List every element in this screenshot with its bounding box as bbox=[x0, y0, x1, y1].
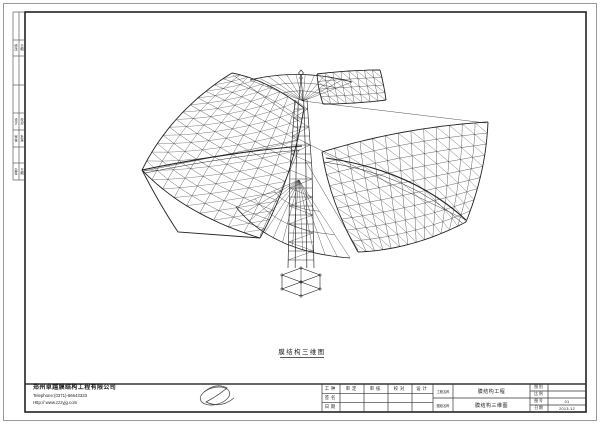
project-name-value: 膜结构工程 bbox=[453, 384, 530, 398]
titleblock-row-label: 工种 bbox=[322, 384, 340, 393]
company-phone: Telephone:(0371)-66643333 bbox=[33, 394, 87, 398]
company-website: Http:// www.zzzyjg.com bbox=[33, 401, 77, 405]
sheet-type-label: 图别 bbox=[530, 384, 548, 391]
margin-cell: 日期 bbox=[19, 41, 25, 55]
scale-label: 比例 bbox=[530, 391, 548, 398]
titleblock-row-label: 日期 bbox=[322, 403, 340, 412]
date-value: 2013-12 bbox=[548, 405, 586, 412]
margin-cell: 批准 bbox=[19, 131, 25, 146]
structure-wireframe bbox=[142, 70, 488, 297]
titleblock-row-label: 签名 bbox=[322, 393, 340, 402]
drawing-sheet: 修改 日期 设计 校对 审核 批准 会签 日期 膜结构三维图 郑州卓越膜结构工程… bbox=[0, 0, 600, 424]
sheet-name-label: 图纸名称 bbox=[433, 398, 453, 412]
company-logo bbox=[198, 384, 234, 408]
company-name: 郑州卓越膜结构工程有限公司 bbox=[33, 385, 116, 391]
sheet-linework bbox=[0, 0, 600, 424]
sheet-number-label: 图号 bbox=[530, 398, 548, 405]
date-label: 日期 bbox=[530, 405, 548, 412]
margin-cell: 校对 bbox=[19, 114, 25, 129]
sheet-name-value: 膜结构三维图 bbox=[453, 398, 530, 412]
sheet-number-value: 01 bbox=[548, 398, 586, 405]
outer-border bbox=[4, 4, 597, 421]
project-name-label: 工程名称 bbox=[433, 384, 453, 398]
titleblock-header-checked: 审核 bbox=[364, 384, 388, 393]
margin-signature-table bbox=[13, 12, 25, 180]
margin-cell: 日期 bbox=[19, 164, 25, 179]
drawing-caption: 膜结构三维图 bbox=[262, 346, 342, 356]
sheet-type-value bbox=[548, 384, 586, 391]
titleblock-header-designed: 设计 bbox=[412, 384, 433, 393]
titleblock-header-approved: 审定 bbox=[340, 384, 364, 393]
scale-value bbox=[548, 391, 586, 398]
titleblock-header-proofread: 校对 bbox=[388, 384, 412, 393]
